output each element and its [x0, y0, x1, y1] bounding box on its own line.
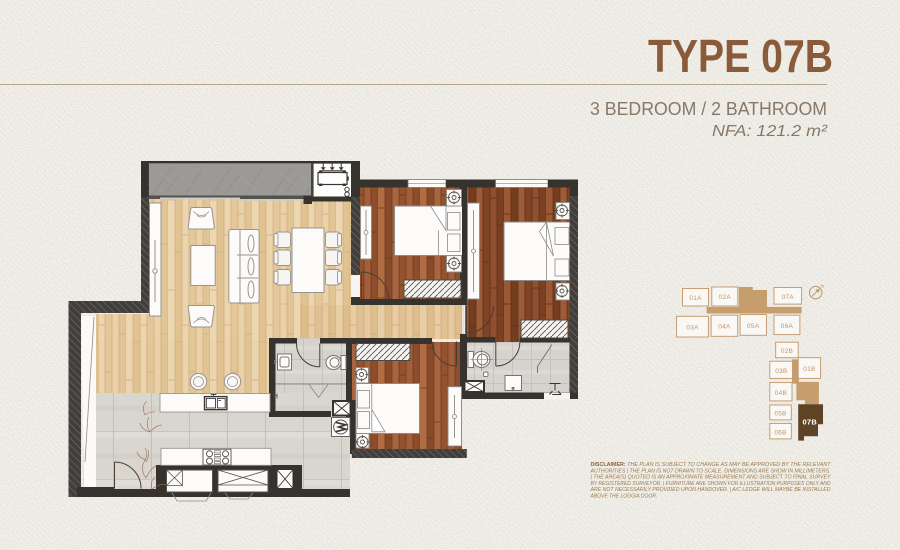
svg-text:03B: 03B	[775, 368, 787, 375]
svg-text:| THE AREA(S) QUOTED IS AN APP: | THE AREA(S) QUOTED IS AN APPROXIMATE M…	[591, 475, 832, 481]
svg-text:02A: 02A	[719, 294, 732, 301]
svg-text:07B: 07B	[802, 418, 817, 427]
svg-text:02B: 02B	[781, 348, 793, 355]
svg-text:DISCLAIMER: THE PLAN IS SUBJEC: DISCLAIMER: THE PLAN IS SUBJECT TO CHANG…	[591, 462, 832, 468]
svg-text:05B: 05B	[774, 411, 786, 418]
svg-text:07A: 07A	[782, 294, 795, 301]
svg-text:TYPE 07B: TYPE 07B	[648, 30, 833, 82]
svg-text:01A: 01A	[689, 295, 702, 302]
svg-text:3 BEDROOM / 2 BATHROOM: 3 BEDROOM / 2 BATHROOM	[590, 98, 827, 119]
svg-text:01B: 01B	[803, 366, 815, 373]
svg-text:04B: 04B	[775, 390, 787, 397]
svg-text:03A: 03A	[686, 324, 699, 331]
svg-text:04A: 04A	[718, 324, 731, 331]
svg-text:BY REGISTERED SURVEYOR. | FURN: BY REGISTERED SURVEYOR. | FURNITURE ARE …	[591, 481, 831, 487]
svg-text:ARE NOT NECESSARILY PROVIDED U: ARE NOT NECESSARILY PROVIDED UPON HANDOV…	[589, 487, 830, 493]
svg-text:NFA: 121.2 m²: NFA: 121.2 m²	[712, 123, 828, 140]
svg-text:N: N	[821, 284, 825, 289]
svg-text:05A: 05A	[747, 323, 760, 330]
svg-text:06A: 06A	[781, 323, 794, 330]
svg-text:AUTHORITIES | THE PLAN IS NOT: AUTHORITIES | THE PLAN IS NOT DRAWN TO S…	[589, 468, 830, 474]
svg-text:ABOVE THE LOGGIA DOOR.: ABOVE THE LOGGIA DOOR.	[590, 494, 658, 500]
svg-text:06B: 06B	[774, 429, 786, 436]
